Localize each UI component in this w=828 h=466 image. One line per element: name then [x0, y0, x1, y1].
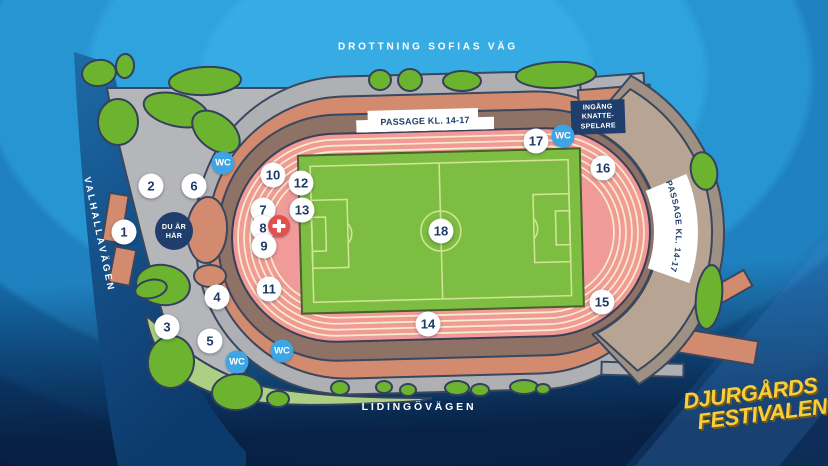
- first-aid-icon: [268, 215, 290, 237]
- marker-15: 15: [590, 290, 615, 315]
- marker-9: 9: [252, 234, 277, 259]
- marker-16: 16: [591, 156, 616, 181]
- wc-badge: WC: [212, 152, 235, 175]
- marker-17: 17: [524, 129, 549, 154]
- marker-11: 11: [257, 277, 282, 302]
- wc-badge: WC: [552, 125, 575, 148]
- marker-3: 3: [155, 315, 180, 340]
- passage-top-banner: PASSAGE KL. 14-17: [356, 105, 495, 133]
- marker-1: 1: [112, 220, 137, 245]
- passage-top-label: PASSAGE KL. 14-17: [380, 115, 469, 127]
- marker-6: 6: [182, 174, 207, 199]
- you-are-here-line1: DU ÄR: [162, 222, 186, 231]
- marker-14: 14: [416, 312, 441, 337]
- marker-18: 18: [429, 219, 454, 244]
- wc-badge: WC: [226, 351, 249, 374]
- wc-badge: WC: [271, 340, 294, 363]
- marker-10: 10: [261, 163, 286, 188]
- road-label-drottning-sofias-vag: DROTTNING SOFIAS VÄG: [338, 42, 518, 53]
- marker-4: 4: [205, 285, 230, 310]
- entrance-line3: SPELARE: [573, 121, 623, 132]
- festival-map-poster: PASSAGE KL. 14-17: [0, 0, 828, 466]
- you-are-here-line2: HÄR: [166, 231, 182, 240]
- marker-5: 5: [198, 329, 223, 354]
- you-are-here-badge: DU ÄR HÄR: [155, 212, 193, 250]
- road-label-lidingovagen: LIDINGÖVÄGEN: [362, 401, 477, 413]
- marker-2: 2: [139, 174, 164, 199]
- entrance-knattespelare-box: INGÅNG KNATTE- SPELARE: [570, 99, 625, 135]
- djurgardsfestivalen-logo: DJURGÅRDS FESTIVALEN: [682, 374, 828, 434]
- marker-13: 13: [290, 198, 315, 223]
- marker-12: 12: [289, 171, 314, 196]
